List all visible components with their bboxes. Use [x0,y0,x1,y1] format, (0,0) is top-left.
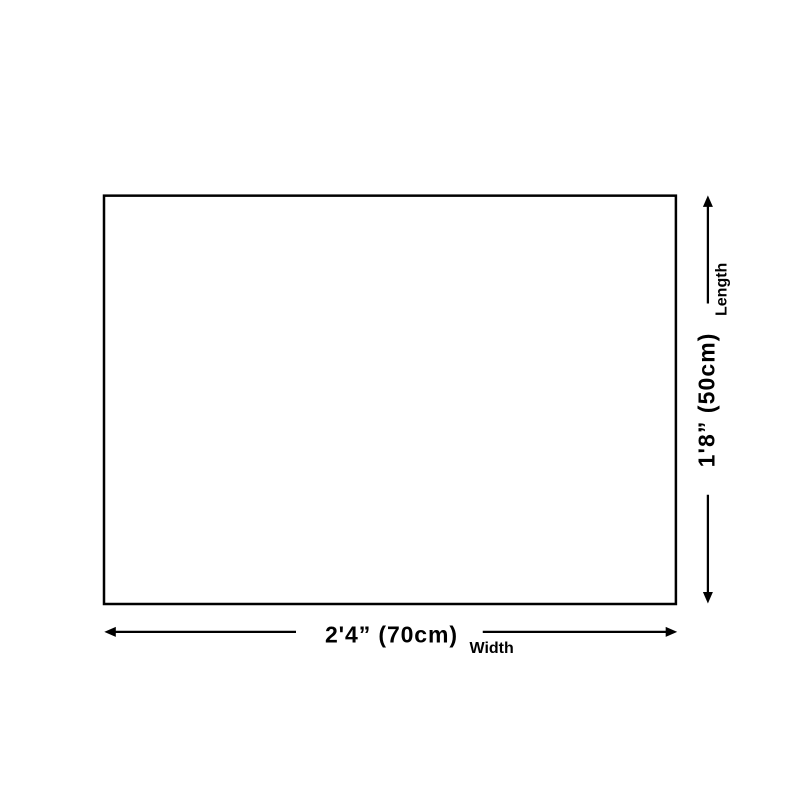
svg-text:1'8” (50cm): 1'8” (50cm) [694,334,720,468]
svg-text:Length: Length [714,263,731,316]
svg-text:2'4” (70cm): 2'4” (70cm) [325,622,457,648]
svg-text:Width: Width [470,640,514,657]
